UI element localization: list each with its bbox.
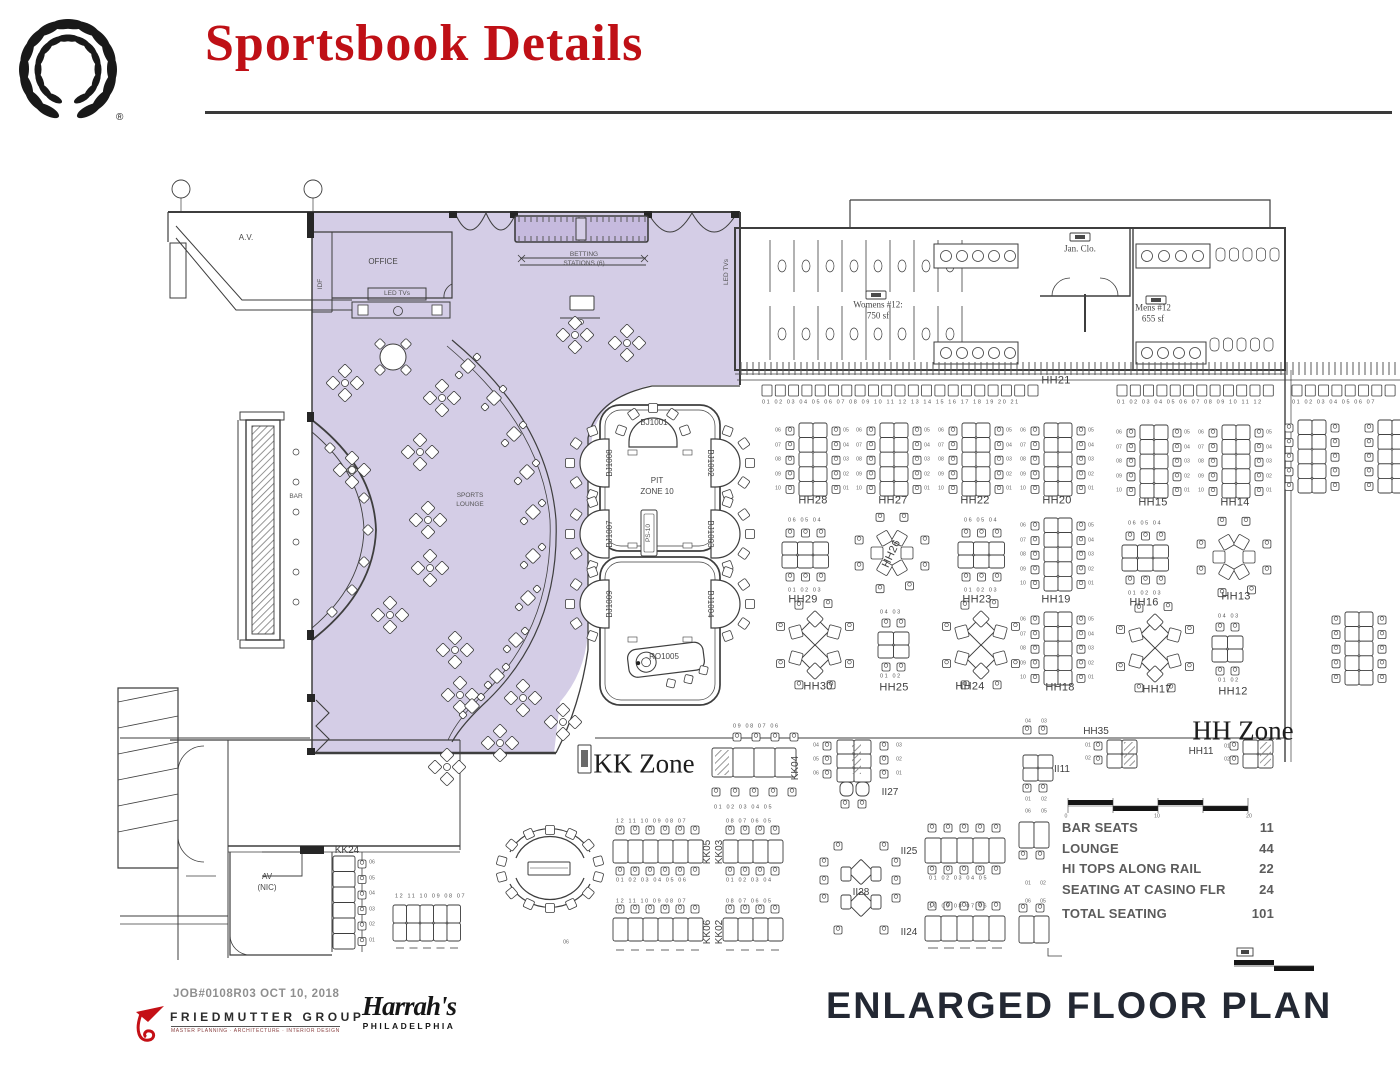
- seating-value: 24: [1259, 882, 1274, 897]
- seating-value: 101: [1252, 906, 1274, 921]
- slot-rosette-hh24: [943, 600, 1020, 689]
- slot-bank: [1332, 612, 1386, 685]
- slot-bank-hh27: [867, 423, 921, 496]
- seating-row: BAR SEATS11: [1062, 820, 1274, 835]
- slot-bank-hh29: [782, 529, 829, 581]
- seating-label: TOTAL SEATING: [1062, 906, 1167, 921]
- seating-row: TOTAL SEATING101: [1062, 906, 1274, 921]
- seating-label: BAR SEATS: [1062, 820, 1138, 835]
- slot-bank-kk24: [333, 856, 366, 949]
- slot-bank-hh18: [1031, 612, 1085, 685]
- slot-bank-hh15: [1127, 425, 1181, 498]
- slot-bank-ii27: [823, 740, 888, 808]
- plan-title: ENLARGED FLOOR PLAN: [826, 985, 1254, 1027]
- womens-restroom: [770, 240, 1018, 364]
- slot-rosette-hh13: [1197, 517, 1271, 596]
- seating-label: SEATING AT CASINO FLR: [1062, 882, 1226, 897]
- seating-value: 44: [1259, 841, 1274, 856]
- kk-zone-banks: [613, 733, 798, 950]
- seating-row: SEATING AT CASINO FLR24: [1062, 882, 1274, 897]
- slot-bank: [1285, 420, 1339, 493]
- slot-bank-ii11: [1023, 726, 1053, 792]
- slot-bank-hh16: [1122, 532, 1169, 584]
- friedmutter-logo: FRIEDMUTTER GROUP MASTER PLANNING · ARCH…: [133, 1004, 363, 1048]
- slot-bank-hh11: [1230, 740, 1273, 768]
- slot-rosette-hh17: [1117, 603, 1194, 692]
- harrahs-logo: Harrah's PHILADELPHIA: [362, 993, 456, 1031]
- seating-value: 22: [1259, 861, 1274, 876]
- slot-bank-hh14: [1209, 425, 1263, 498]
- slot-bank-hh35: [1094, 740, 1137, 768]
- scale-bar-2: [1234, 948, 1314, 971]
- seating-row: HI TOPS ALONG RAIL22: [1062, 861, 1274, 876]
- scale-bar: [1068, 798, 1248, 813]
- fg-monogram-icon: [133, 1004, 169, 1046]
- slot-bank-hh22: [949, 423, 1003, 496]
- seating-summary-table: BAR SEATS11LOUNGE44HI TOPS ALONG RAIL22S…: [1062, 820, 1274, 926]
- slot-bank-hh12: [1212, 623, 1243, 675]
- slot-bank: [1365, 420, 1400, 493]
- slot-bank-hh20: [1031, 423, 1085, 496]
- firm-tagline: MASTER PLANNING · ARCHITECTURE · INTERIO…: [171, 1026, 340, 1034]
- slot-bank-hh25: [878, 619, 909, 671]
- slot-rosette-hh26: [855, 513, 929, 592]
- slot-bank-hh19: [1031, 518, 1085, 591]
- seating-label: LOUNGE: [1062, 841, 1119, 856]
- seating-row: LOUNGE44: [1062, 841, 1274, 856]
- slot-rosette-ii28: [820, 842, 900, 934]
- slot-bank-hh23: [958, 529, 1005, 581]
- seating-value: 11: [1260, 820, 1274, 835]
- client-city: PHILADELPHIA: [362, 1021, 456, 1031]
- slot-rosette-hh30: [777, 600, 854, 689]
- seating-label: HI TOPS ALONG RAIL: [1062, 861, 1201, 876]
- slide: ® Sportsbook Details A.V.OFFICEIDFLED TV…: [0, 0, 1400, 1080]
- client-name: Harrah's: [362, 993, 456, 1020]
- job-number: JOB#0108R03 OCT 10, 2018: [173, 988, 340, 1000]
- slot-bank-hh28: [786, 423, 840, 496]
- firm-name: FRIEDMUTTER GROUP: [170, 1010, 365, 1024]
- fan-seating-cluster: [496, 826, 604, 913]
